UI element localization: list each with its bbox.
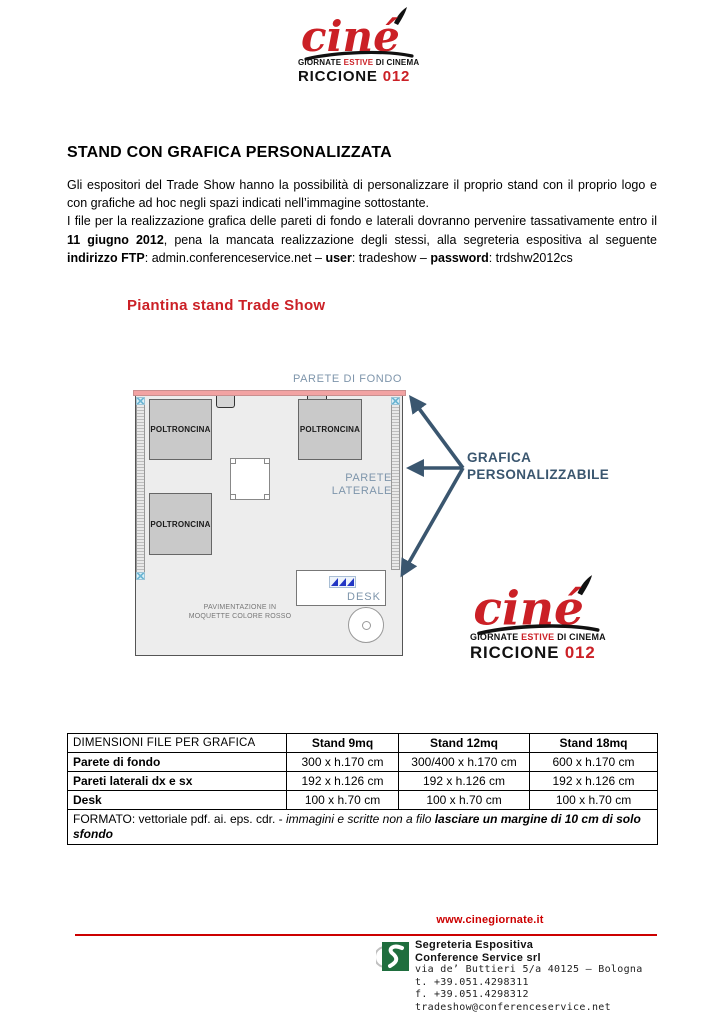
wall-fixture bbox=[216, 396, 235, 408]
city-text: RICCIONE bbox=[470, 643, 559, 662]
text-run: , pena la mancata realizzazione degli st… bbox=[164, 233, 657, 247]
password-value: : trdshw2012cs bbox=[489, 251, 573, 265]
page-title: STAND CON GRAFICA PERSONALIZZATA bbox=[67, 144, 392, 162]
ftp-address: : admin.conferenceservice.net – bbox=[145, 251, 326, 265]
desk-label: DESK bbox=[347, 591, 381, 603]
diagram-title: Piantina stand Trade Show bbox=[127, 297, 325, 314]
table-cell: 100 x h.70 cm bbox=[287, 791, 399, 810]
tagline-part-red: ESTIVE bbox=[521, 632, 554, 642]
armchair-top-left: POLTRONCINA bbox=[149, 399, 212, 460]
wall-joint-icon bbox=[136, 397, 145, 405]
table-cell: 300/400 x h.170 cm bbox=[399, 753, 530, 772]
armchair-label: POLTRONCINA bbox=[150, 425, 210, 434]
footer-telephone: t. +39.051.4298311 bbox=[415, 977, 643, 990]
user-value: : tradeshow – bbox=[352, 251, 431, 265]
left-side-wall bbox=[136, 397, 145, 580]
table-cell: 100 x h.70 cm bbox=[530, 791, 658, 810]
cine-tagline: GIORNATE ESTIVE DI CINEMA bbox=[298, 58, 420, 67]
cine-logo: ciné GIORNATE ESTIVE DI CINEMA RICCIONE0… bbox=[298, 6, 420, 85]
parete-laterale-line1: PARETE bbox=[310, 472, 392, 485]
document-page: ciné GIORNATE ESTIVE DI CINEMA RICCIONE0… bbox=[0, 0, 724, 1024]
footer-org-line1: Segreteria Espositiva bbox=[415, 939, 643, 952]
armchair-top-right: POLTRONCINA bbox=[298, 399, 362, 460]
footer-divider bbox=[75, 934, 657, 936]
table-row: Pareti laterali dx e sx 192 x h.126 cm 1… bbox=[68, 772, 658, 791]
coffee-table bbox=[230, 458, 270, 500]
parete-di-fondo-label: PARETE DI FONDO bbox=[293, 373, 402, 385]
flooring-note-line1: PAVIMENTAZIONE IN bbox=[175, 604, 305, 613]
stool-center bbox=[362, 621, 371, 630]
right-side-wall bbox=[391, 397, 400, 570]
table-header-cell: Stand 9mq bbox=[287, 734, 399, 753]
table-row: Desk 100 x h.70 cm 100 x h.70 cm 100 x h… bbox=[68, 791, 658, 810]
table-corner bbox=[230, 458, 236, 464]
armchair-label: POLTRONCINA bbox=[300, 425, 360, 434]
cine-tagline: GIORNATE ESTIVE DI CINEMA bbox=[470, 632, 607, 642]
table-row-label: Desk bbox=[68, 791, 287, 810]
tagline-part-red: ESTIVE bbox=[344, 58, 374, 67]
table-cell: 192 x h.126 cm bbox=[399, 772, 530, 791]
footer-contact-block: Segreteria Espositiva Conference Service… bbox=[415, 939, 643, 1015]
table-header-cell: Stand 12mq bbox=[399, 734, 530, 753]
intro-text: Gli espositori del Trade Show hanno la p… bbox=[67, 176, 657, 267]
tagline-part: DI CINEMA bbox=[554, 632, 606, 642]
table-corner bbox=[264, 494, 270, 500]
footer-email: tradeshow@conferenceservice.net bbox=[415, 1002, 643, 1015]
formato-normal: FORMATO: vettoriale pdf. ai. eps. cdr. - bbox=[73, 812, 286, 826]
tagline-part: GIORNATE bbox=[470, 632, 521, 642]
text-run: I file per la realizzazione grafica dell… bbox=[67, 214, 657, 228]
formato-italic: immagini e scritte non a filo bbox=[286, 812, 435, 826]
desk: DESK bbox=[296, 570, 386, 606]
cine-script-graphic: ciné bbox=[470, 574, 607, 641]
armchair-bottom-left: POLTRONCINA bbox=[149, 493, 212, 555]
cine-script-graphic: ciné bbox=[298, 6, 420, 66]
grafica-personalizzabile-label: GRAFICA PERSONALIZZABILE bbox=[467, 450, 609, 483]
intro-paragraph-1: Gli espositori del Trade Show hanno la p… bbox=[67, 176, 657, 212]
conference-service-logo bbox=[376, 941, 410, 973]
parete-laterale-line2: LATERALE bbox=[310, 485, 392, 498]
tagline-part: DI CINEMA bbox=[373, 58, 419, 67]
footer-org-line2: Conference Service srl bbox=[415, 952, 643, 965]
dimensions-table: DIMENSIONI FILE PER GRAFICA Stand 9mq St… bbox=[67, 733, 658, 845]
back-wall bbox=[133, 390, 406, 396]
table-cell: 300 x h.170 cm bbox=[287, 753, 399, 772]
table-cell: 100 x h.70 cm bbox=[399, 791, 530, 810]
table-cell: 192 x h.126 cm bbox=[530, 772, 658, 791]
formato-cell: FORMATO: vettoriale pdf. ai. eps. cdr. -… bbox=[68, 810, 658, 845]
website-link[interactable]: www.cinegiornate.it bbox=[330, 914, 650, 926]
desk-logo-icon bbox=[329, 576, 356, 588]
stool bbox=[348, 607, 384, 643]
table-row: Parete di fondo 300 x h.170 cm 300/400 x… bbox=[68, 753, 658, 772]
wall-joint-icon bbox=[391, 397, 400, 405]
table-header-cell: Stand 18mq bbox=[530, 734, 658, 753]
parete-laterale-label: PARETE LATERALE bbox=[310, 472, 392, 498]
table-header-row: DIMENSIONI FILE PER GRAFICA Stand 9mq St… bbox=[68, 734, 658, 753]
grafica-line2: PERSONALIZZABILE bbox=[467, 467, 609, 484]
user-label: user bbox=[325, 251, 351, 265]
cine-city-line: RICCIONE012 bbox=[470, 643, 607, 662]
table-corner bbox=[264, 458, 270, 464]
password-label: password bbox=[430, 251, 488, 265]
year-text: 012 bbox=[383, 68, 410, 85]
table-header-cell: DIMENSIONI FILE PER GRAFICA bbox=[68, 734, 287, 753]
table-cell: 192 x h.126 cm bbox=[287, 772, 399, 791]
cine-logo: ciné GIORNATE ESTIVE DI CINEMA RICCIONE0… bbox=[470, 574, 607, 662]
armchair-label: POLTRONCINA bbox=[150, 520, 210, 529]
table-corner bbox=[230, 494, 236, 500]
footer-fax: f. +39.051.4298312 bbox=[415, 989, 643, 1002]
table-cell: 600 x h.170 cm bbox=[530, 753, 658, 772]
year-text: 012 bbox=[565, 643, 596, 662]
deadline-text: 11 giugno 2012 bbox=[67, 233, 164, 247]
city-text: RICCIONE bbox=[298, 68, 378, 85]
tagline-part: GIORNATE bbox=[298, 58, 344, 67]
ftp-label: indirizzo FTP bbox=[67, 251, 145, 265]
wall-joint-icon bbox=[136, 572, 145, 580]
intro-paragraph-2: I file per la realizzazione grafica dell… bbox=[67, 212, 657, 267]
footer-address: via de’ Buttieri 5/a 40125 – Bologna bbox=[415, 964, 643, 977]
flooring-note: PAVIMENTAZIONE IN MOQUETTE COLORE ROSSO bbox=[175, 604, 305, 621]
table-row-label: Pareti laterali dx e sx bbox=[68, 772, 287, 791]
cine-city-line: RICCIONE012 bbox=[298, 68, 420, 85]
grafica-line1: GRAFICA bbox=[467, 450, 609, 467]
table-formato-row: FORMATO: vettoriale pdf. ai. eps. cdr. -… bbox=[68, 810, 658, 845]
table-row-label: Parete di fondo bbox=[68, 753, 287, 772]
flooring-note-line2: MOQUETTE COLORE ROSSO bbox=[175, 613, 305, 622]
